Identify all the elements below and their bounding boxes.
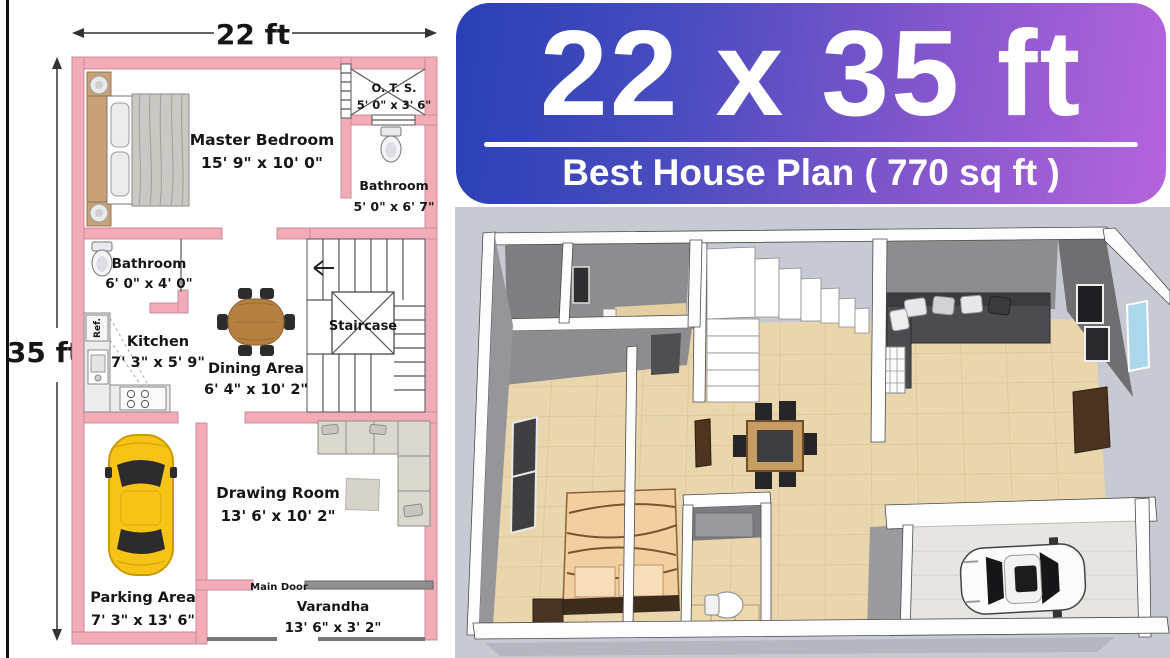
master-bedroom-name: Master Bedroom — [190, 131, 335, 149]
varandha-edge — [318, 637, 425, 641]
master-bedroom-size: 15' 9" x 10' 0" — [201, 154, 323, 172]
varandha-size: 13' 6" x 3' 2" — [285, 620, 382, 636]
ots-size: 5' 0" x 3' 6" — [357, 98, 431, 112]
car-3d — [959, 536, 1087, 622]
banner-title: 22 x 35 ft — [456, 9, 1166, 137]
toilet-icon — [381, 127, 401, 162]
bathroom-top-size: 5' 0" x 6' 7" — [354, 199, 435, 214]
bathroom-top-name: Bathroom — [359, 178, 428, 193]
car-top-view — [105, 435, 177, 575]
width-dimension: 22 ft — [72, 18, 437, 51]
dining-table — [217, 288, 295, 356]
parking-size: 7' 3" x 13' 6" — [91, 613, 195, 629]
rug — [345, 478, 379, 510]
exterior-window-3d — [1127, 301, 1149, 371]
ots-name: O. T. S. — [371, 81, 416, 95]
left-border-line — [6, 0, 9, 658]
window-3d — [1085, 327, 1109, 361]
door-leaf-3d — [695, 419, 711, 467]
bathroom-top-3d — [505, 244, 563, 323]
staircase-label: Staircase — [329, 319, 397, 334]
bedroom-doorway-3d — [651, 333, 681, 375]
fridge-label: Ref. — [93, 318, 103, 338]
page: 22 x 35 ft Best House Plan ( 770 sq ft )… — [0, 0, 1170, 658]
kitchen-shelf-3d — [883, 347, 905, 393]
toilet-icon — [92, 242, 112, 276]
kitchen-name: Kitchen — [127, 334, 189, 350]
parking-name: Parking Area — [90, 590, 196, 606]
floor-plan-2d: 22 ft 35 ft — [0, 0, 460, 658]
main-door-panel[interactable] — [305, 581, 433, 589]
bed — [87, 72, 189, 226]
height-dimension: 35 ft — [7, 57, 81, 641]
bathroom-mid-size: 6' 0" x 4' 0" — [105, 276, 192, 292]
wall-frame-3d — [573, 267, 589, 303]
main-door-label: Main Door — [250, 582, 308, 593]
dining-name: Dining Area — [208, 361, 304, 377]
cabinet-3d — [1073, 387, 1110, 453]
kitchen-size: 7' 3" x 5' 9" — [111, 355, 205, 371]
varandha-name: Varandha — [297, 599, 370, 615]
staircase: Staircase — [307, 239, 425, 412]
title-banner: 22 x 35 ft Best House Plan ( 770 sq ft ) — [456, 3, 1166, 204]
varandha-edge — [207, 637, 277, 641]
garage-3d — [885, 497, 1157, 637]
banner-subtitle: Best House Plan ( 770 sq ft ) — [456, 151, 1166, 195]
dining-size: 6' 4" x 10' 2" — [204, 382, 308, 398]
drawing-name: Drawing Room — [216, 484, 339, 502]
height-label: 35 ft — [7, 336, 81, 369]
bathroom-mid-name: Bathroom — [112, 256, 187, 272]
drawing-size: 13' 6' x 10' 2" — [221, 507, 336, 525]
banner-divider — [484, 142, 1137, 147]
porch-3d — [867, 525, 905, 632]
ots-window — [341, 64, 351, 118]
window-3d — [1077, 285, 1103, 323]
width-label: 22 ft — [216, 18, 290, 51]
floor-plan-3d — [455, 207, 1170, 658]
